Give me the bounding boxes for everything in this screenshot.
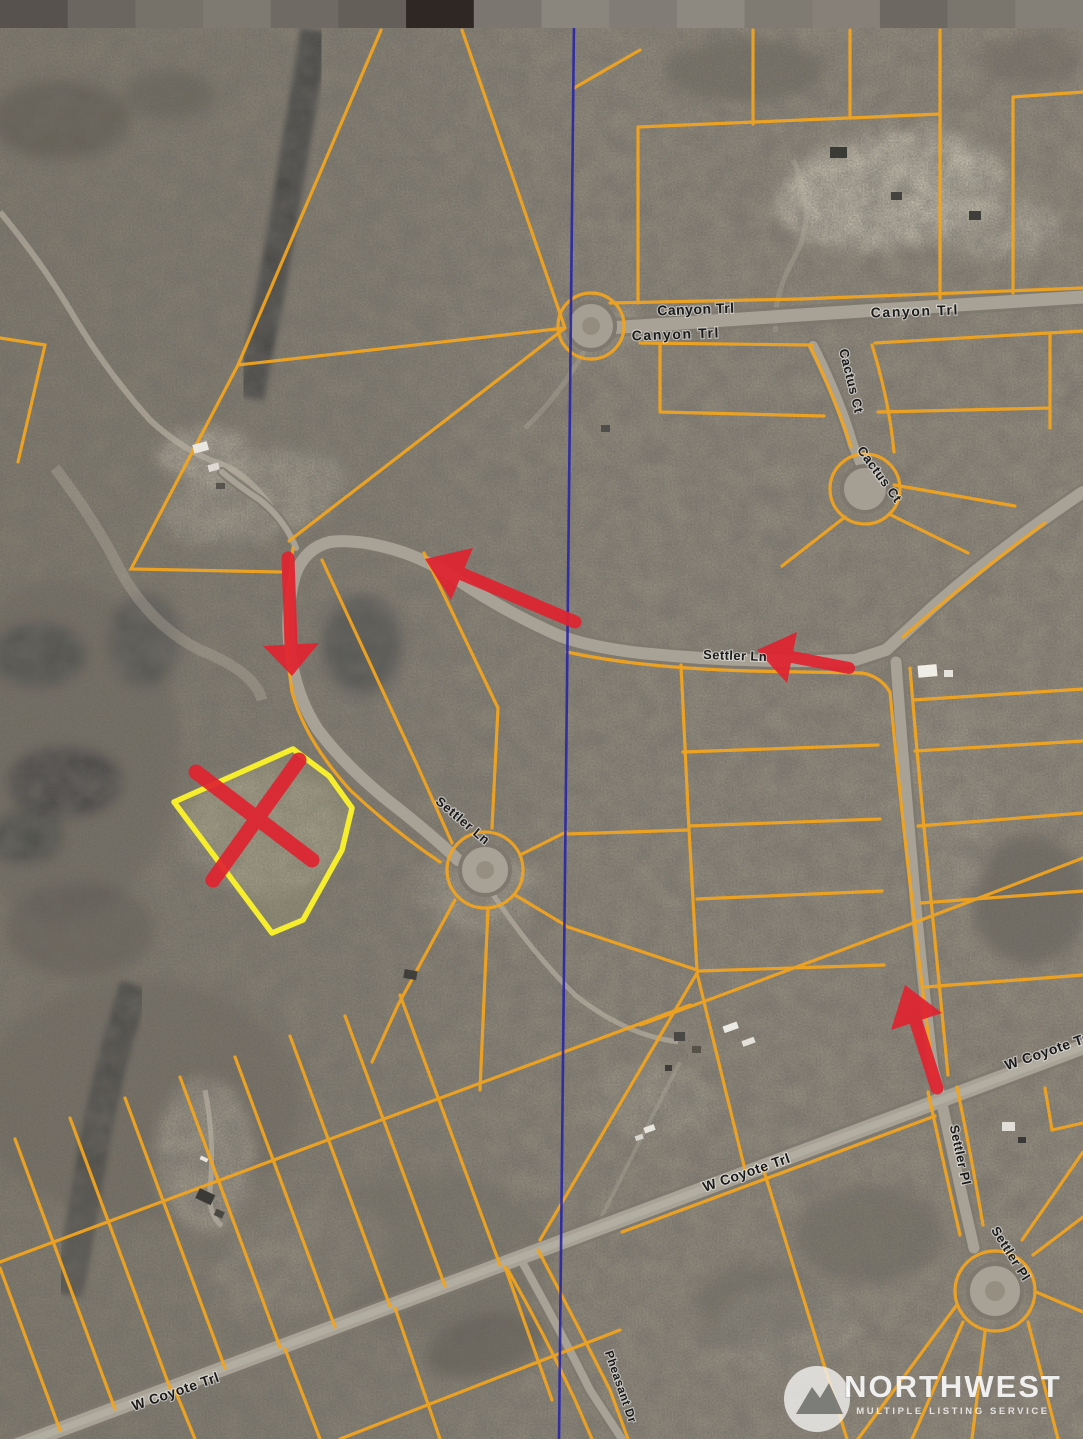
artifact-block bbox=[542, 0, 611, 28]
artifact-block bbox=[0, 0, 69, 28]
artifact-block bbox=[1015, 0, 1083, 28]
terrain-base bbox=[0, 0, 1083, 1439]
artifact-block bbox=[474, 0, 543, 28]
artifact-block bbox=[135, 0, 204, 28]
artifact-block bbox=[812, 0, 881, 28]
road-label: Canyon Trl bbox=[631, 324, 720, 343]
artifact-block bbox=[406, 0, 475, 28]
artifact-block bbox=[745, 0, 814, 28]
artifact-block bbox=[677, 0, 746, 28]
top-edge-artifact-strip bbox=[0, 0, 1083, 28]
aerial-map: Canyon TrlCanyon TrlCanyon TrlCactus CtC… bbox=[0, 0, 1083, 1439]
artifact-block bbox=[609, 0, 678, 28]
artifact-block bbox=[68, 0, 137, 28]
watermark-title: NORTHWEST bbox=[844, 1369, 1062, 1404]
artifact-block bbox=[271, 0, 340, 28]
artifact-block bbox=[338, 0, 407, 28]
watermark-subtitle: MULTIPLE LISTING SERVICE bbox=[856, 1406, 1049, 1417]
artifact-block bbox=[948, 0, 1017, 28]
artifact-block bbox=[203, 0, 272, 28]
artifact-block bbox=[880, 0, 949, 28]
road-label: Canyon Trl bbox=[657, 300, 735, 319]
road-label: Settler Ln bbox=[703, 647, 767, 664]
road-label: Canyon Trl bbox=[870, 301, 959, 320]
